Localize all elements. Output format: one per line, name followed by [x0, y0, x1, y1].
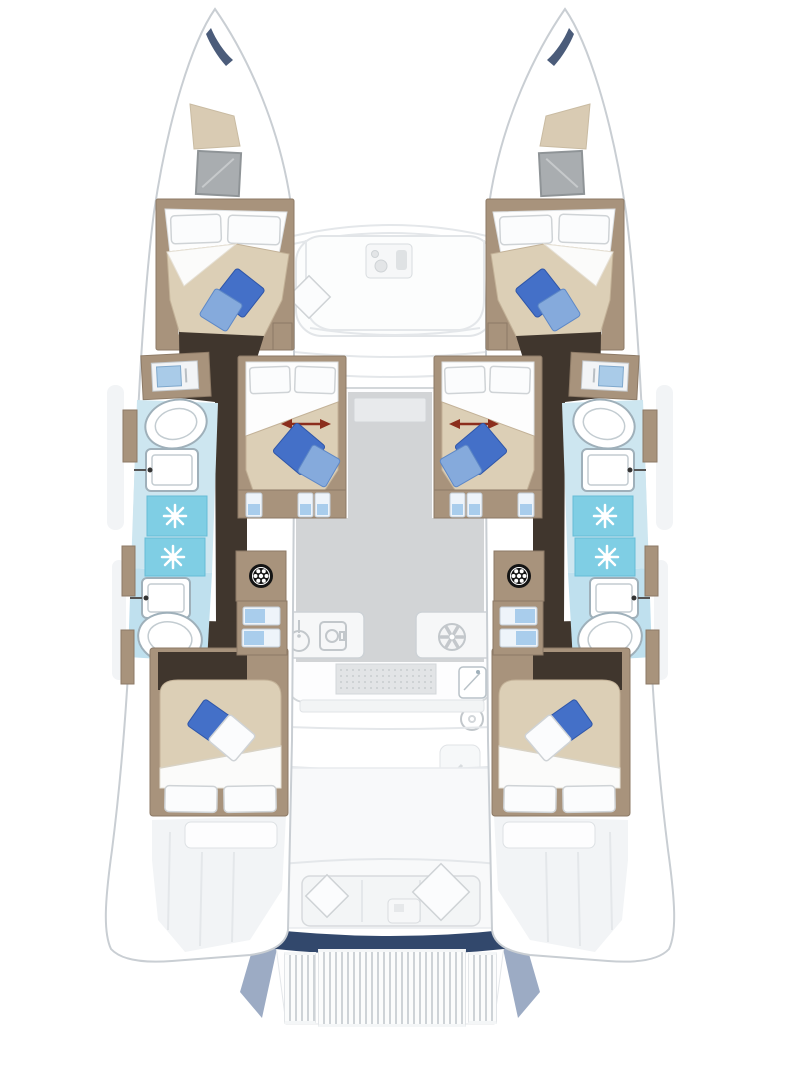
- table-item: [375, 260, 387, 272]
- swim-platform-grating: [318, 949, 466, 1027]
- door-mat: [336, 664, 436, 694]
- door-threshold: [300, 700, 484, 712]
- swim-platform-grating: [284, 952, 316, 1024]
- floor-plan-svg: [0, 0, 791, 1080]
- table-item: [394, 904, 404, 912]
- table-item: [396, 250, 407, 270]
- floor-plan-canvas: [0, 0, 791, 1080]
- nav-station: [354, 398, 426, 422]
- swim-platform-grating: [468, 952, 497, 1024]
- stove-burner-icon: [439, 624, 465, 650]
- cockpit-sink-icon: [459, 667, 486, 698]
- galley-counter-port: [282, 612, 364, 658]
- forward-crossbeam: [293, 225, 487, 236]
- table-item: [372, 251, 379, 258]
